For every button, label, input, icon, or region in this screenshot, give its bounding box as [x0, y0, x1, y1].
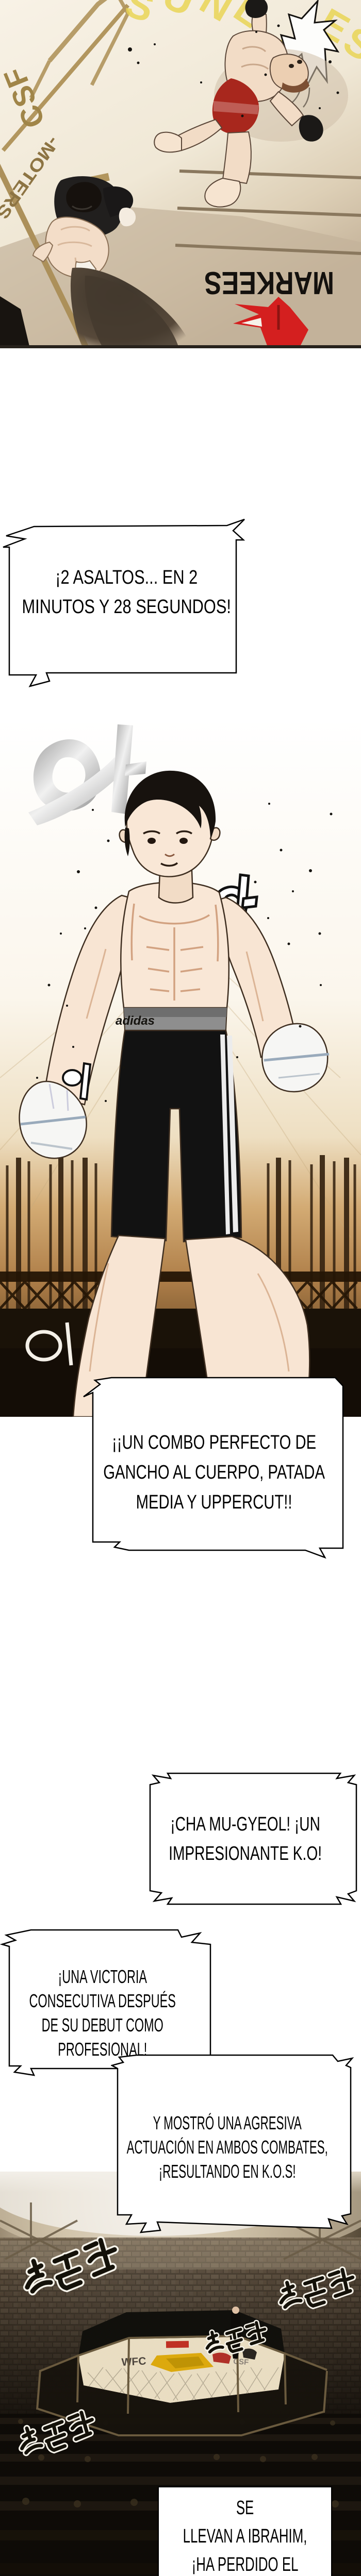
svg-text:MARKEES: MARKEES: [204, 265, 334, 300]
svg-text:adidas: adidas: [116, 1014, 155, 1028]
svg-text:WFC: WFC: [121, 2355, 146, 2368]
